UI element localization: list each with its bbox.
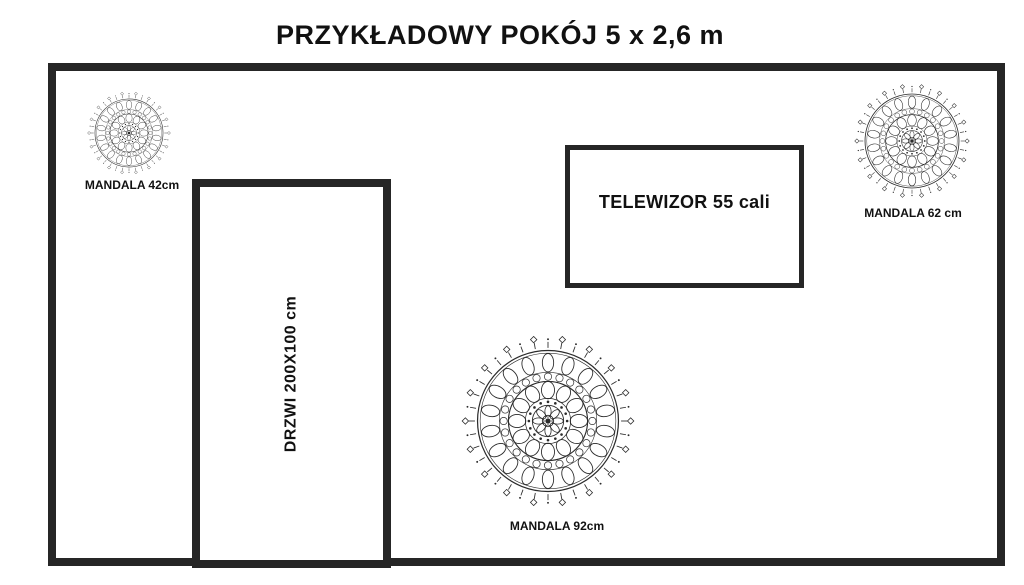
door-rectangle: DRZWI 200X100 cm <box>192 179 391 568</box>
tv-rectangle: TELEWIZOR 55 cali <box>565 145 804 288</box>
mandala-42-graphic <box>87 91 171 175</box>
page-title: PRZYKŁADOWY POKÓJ 5 x 2,6 m <box>0 20 1000 51</box>
mandala-icon <box>87 91 171 175</box>
mandala-92-graphic <box>461 334 635 508</box>
tv-label: TELEWIZOR 55 cali <box>570 192 799 213</box>
mandala-62-label: MANDALA 62 cm <box>838 206 988 220</box>
door-label: DRZWI 200X100 cm <box>282 295 300 452</box>
mandala-icon <box>854 83 970 199</box>
mandala-92-label: MANDALA 92cm <box>482 519 632 533</box>
room-plan-diagram: PRZYKŁADOWY POKÓJ 5 x 2,6 m MANDALA 42cm… <box>0 0 1024 585</box>
mandala-62-graphic <box>854 83 970 199</box>
mandala-42-label: MANDALA 42cm <box>57 178 207 192</box>
mandala-icon <box>461 334 635 508</box>
